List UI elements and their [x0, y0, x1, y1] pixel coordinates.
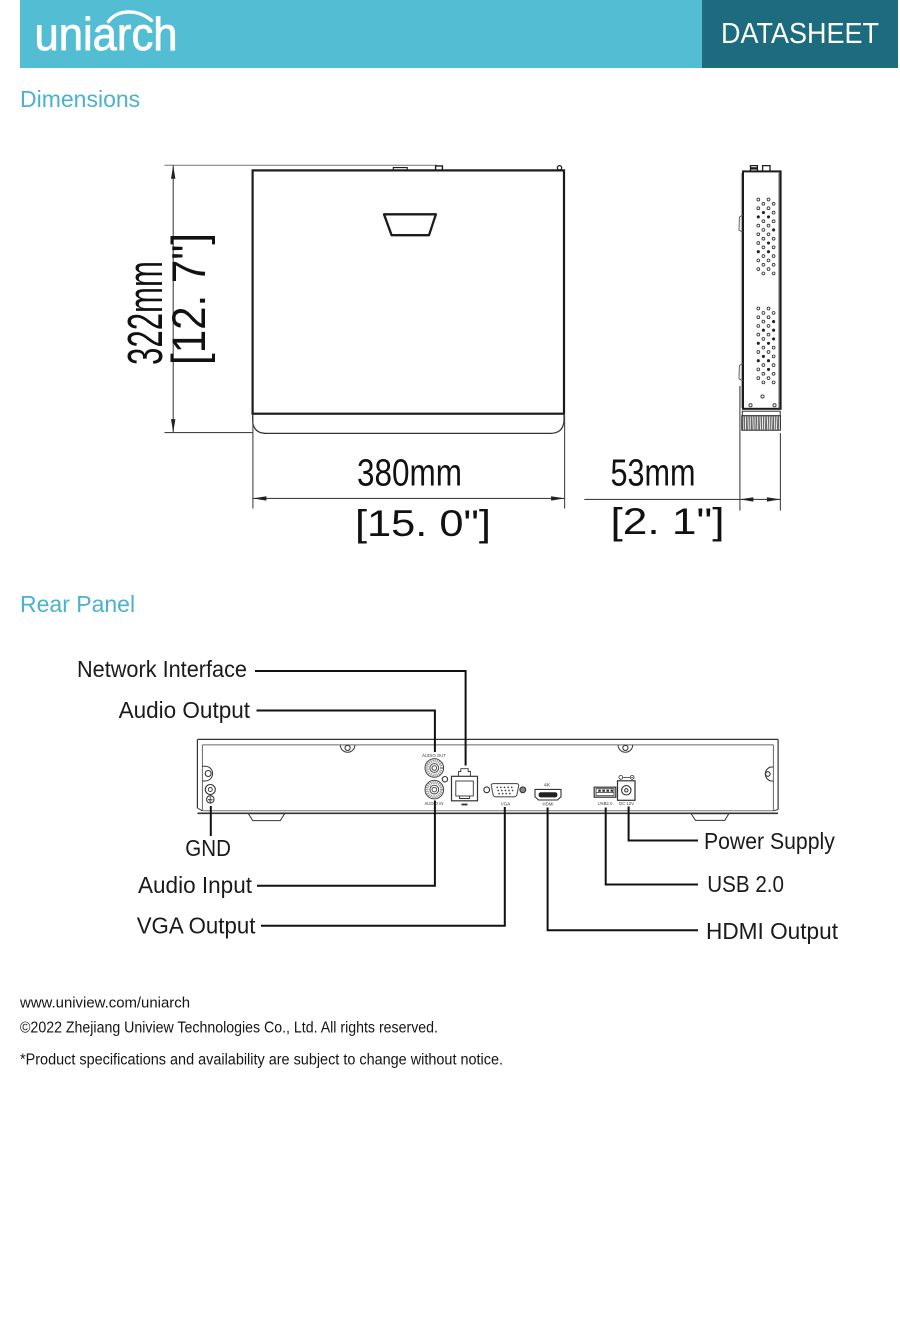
svg-text:AUDIO OUT: AUDIO OUT: [422, 753, 446, 758]
svg-text:[12. 7"]: [12. 7"]: [162, 233, 215, 365]
svg-text:[2. 1"]: [2. 1"]: [611, 501, 725, 542]
svg-text:HDMI: HDMI: [543, 801, 554, 806]
svg-text:*Product specifications and av: *Product specifications and availability…: [20, 1052, 503, 1069]
svg-text:VGA Output: VGA Output: [137, 913, 256, 939]
svg-text:Audio Input: Audio Input: [138, 872, 253, 898]
svg-text:www.uniview.com/uniarch: www.uniview.com/uniarch: [19, 995, 190, 1012]
svg-text:VGA: VGA: [501, 801, 511, 806]
svg-text:[15. 0"]: [15. 0"]: [355, 503, 491, 544]
svg-text:Network Interface: Network Interface: [77, 656, 247, 682]
svg-text:4K: 4K: [544, 782, 551, 788]
svg-text:HDMI Output: HDMI Output: [706, 918, 839, 944]
svg-text:Audio Output: Audio Output: [119, 697, 251, 723]
svg-text:GND: GND: [185, 835, 231, 861]
svg-text:Power Supply: Power Supply: [704, 828, 835, 854]
svg-text:380mm: 380mm: [357, 453, 462, 495]
svg-text:USB2.0: USB2.0: [598, 801, 613, 806]
svg-text:USB 2.0: USB 2.0: [707, 871, 784, 897]
svg-text:©2022 Zhejiang Uniview Technol: ©2022 Zhejiang Uniview Technologies Co.,…: [20, 1020, 438, 1037]
svg-text:DC 12V: DC 12V: [619, 801, 634, 806]
svg-text:53mm: 53mm: [611, 453, 696, 495]
